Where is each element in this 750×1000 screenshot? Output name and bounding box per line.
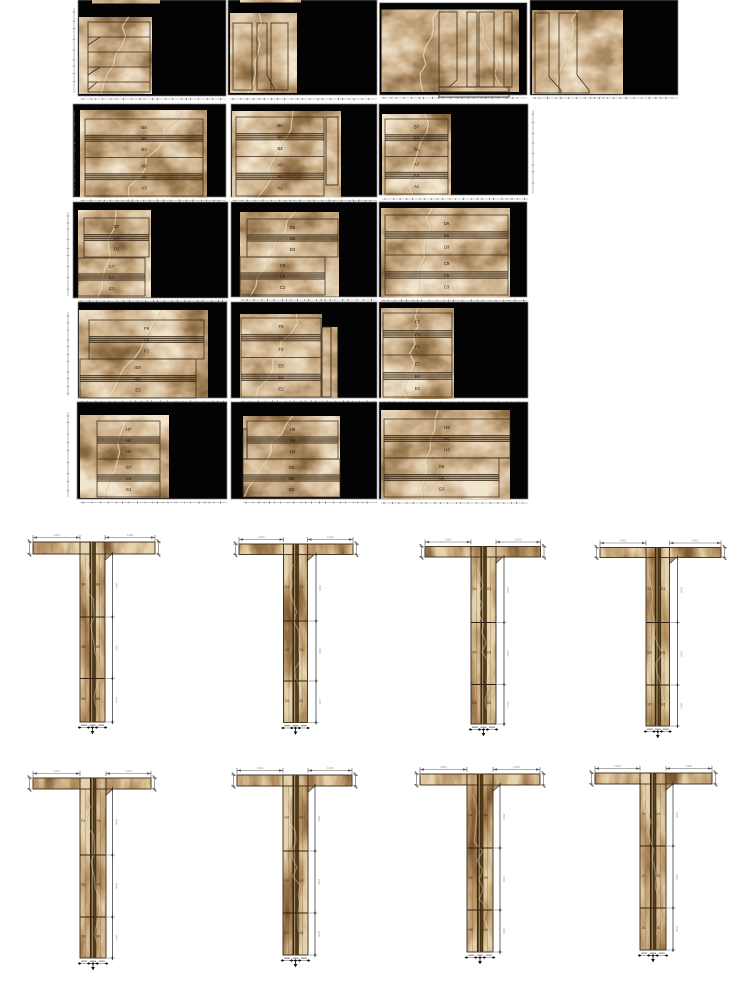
svg-text:A8: A8 — [141, 175, 147, 180]
svg-text:E6: E6 — [661, 703, 665, 707]
svg-text:F7: F7 — [415, 320, 421, 325]
svg-text:C2: C2 — [280, 285, 286, 290]
svg-text:1460: 1460 — [620, 539, 627, 543]
svg-text:1000: 1000 — [502, 928, 506, 935]
svg-text:H4: H4 — [469, 814, 473, 818]
svg-text:B8: B8 — [141, 125, 147, 130]
svg-text:A4: A4 — [414, 173, 420, 178]
svg-text:D4: D4 — [114, 235, 120, 240]
svg-text:F6: F6 — [97, 935, 101, 939]
svg-text:1460: 1460 — [258, 535, 265, 539]
svg-text:D6: D6 — [444, 233, 450, 238]
svg-text:J6: J6 — [657, 926, 661, 930]
svg-text:1500: 1500 — [115, 645, 119, 652]
svg-text:G3: G3 — [439, 487, 445, 492]
svg-text:A7: A7 — [414, 162, 420, 167]
svg-text:F6: F6 — [82, 935, 86, 939]
svg-text:A1: A1 — [414, 184, 420, 189]
svg-text:1460: 1460 — [127, 533, 134, 537]
svg-text:D6: D6 — [473, 701, 477, 705]
svg-text:D9: D9 — [444, 221, 450, 226]
svg-text:B7: B7 — [414, 125, 420, 130]
svg-text:J6: J6 — [642, 926, 646, 930]
svg-text:J4: J4 — [642, 812, 646, 816]
svg-text:H2: H2 — [290, 449, 296, 454]
svg-text:1000: 1000 — [318, 699, 322, 706]
svg-text:1460: 1460 — [686, 764, 693, 768]
svg-text:1460: 1460 — [445, 538, 452, 542]
svg-text:J4: J4 — [657, 812, 661, 816]
svg-text:B4: B4 — [414, 136, 420, 141]
svg-text:1500: 1500 — [115, 582, 119, 589]
svg-text:F8: F8 — [278, 324, 284, 329]
svg-text:1460: 1460 — [327, 766, 334, 770]
svg-text:B8: B8 — [277, 123, 283, 128]
svg-text:G4: G4 — [299, 816, 303, 820]
svg-text:E4: E4 — [648, 587, 652, 591]
svg-text:H3: H3 — [444, 448, 450, 453]
svg-text:1500: 1500 — [317, 815, 321, 822]
svg-text:F5: F5 — [278, 336, 284, 341]
svg-text:G8: G8 — [289, 465, 295, 470]
svg-text:E8: E8 — [278, 364, 284, 369]
svg-text:A8: A8 — [277, 163, 283, 168]
svg-text:H4: H4 — [484, 814, 488, 818]
svg-text:1500: 1500 — [502, 876, 506, 883]
svg-text:E1: E1 — [415, 386, 421, 391]
svg-text:J5: J5 — [642, 874, 646, 878]
svg-text:E5: E5 — [661, 651, 665, 655]
svg-text:B1: B1 — [414, 146, 420, 151]
svg-text:G6: G6 — [439, 475, 445, 480]
svg-text:B4: B4 — [96, 583, 100, 587]
svg-text:A9: A9 — [141, 163, 147, 168]
svg-text:H5: H5 — [484, 876, 488, 880]
svg-text:B6: B6 — [141, 136, 147, 141]
svg-text:E5: E5 — [648, 651, 652, 655]
svg-text:E2: E2 — [278, 387, 284, 392]
svg-text:1460: 1460 — [257, 766, 264, 770]
svg-text:E6: E6 — [648, 703, 652, 707]
svg-text:1000: 1000 — [115, 697, 119, 704]
svg-text:1500: 1500 — [502, 813, 506, 820]
svg-text:E7: E7 — [415, 362, 421, 367]
svg-text:D6: D6 — [487, 701, 491, 705]
svg-text:B6: B6 — [82, 697, 86, 701]
svg-text:B6: B6 — [96, 697, 100, 701]
svg-text:1460: 1460 — [692, 539, 699, 543]
svg-text:D4: D4 — [487, 587, 491, 591]
svg-text:H1: H1 — [126, 449, 132, 454]
svg-text:D2: D2 — [290, 247, 296, 252]
svg-text:1000: 1000 — [115, 934, 119, 941]
svg-text:C4: C4 — [299, 585, 303, 589]
svg-text:C7: C7 — [109, 264, 115, 269]
svg-text:D5: D5 — [473, 651, 477, 655]
svg-text:1500: 1500 — [318, 585, 322, 592]
svg-text:C5: C5 — [299, 648, 303, 652]
svg-text:G2: G2 — [289, 487, 295, 492]
svg-text:F4: F4 — [97, 819, 101, 823]
svg-text:F4: F4 — [82, 819, 86, 823]
svg-text:1500: 1500 — [317, 879, 321, 886]
svg-text:D8: D8 — [290, 225, 296, 230]
svg-text:B4: B4 — [82, 583, 86, 587]
svg-text:J5: J5 — [657, 874, 661, 878]
svg-text:C3: C3 — [444, 284, 450, 289]
svg-text:H9: H9 — [444, 425, 450, 430]
svg-text:H4: H4 — [126, 438, 132, 443]
svg-text:D7: D7 — [114, 224, 120, 229]
svg-text:H6: H6 — [469, 928, 473, 932]
svg-text:F1: F1 — [415, 344, 421, 349]
svg-text:E9: E9 — [135, 365, 141, 370]
svg-text:E6: E6 — [135, 376, 141, 381]
svg-text:D5: D5 — [487, 651, 491, 655]
svg-text:C6: C6 — [444, 273, 450, 278]
svg-text:G5: G5 — [289, 476, 295, 481]
svg-text:C1: C1 — [109, 286, 115, 291]
svg-text:B2: B2 — [277, 146, 283, 151]
svg-text:F2: F2 — [278, 347, 284, 352]
svg-text:1460: 1460 — [327, 535, 334, 539]
svg-text:1460: 1460 — [53, 769, 60, 773]
svg-text:E4: E4 — [661, 587, 665, 591]
svg-text:1500: 1500 — [675, 812, 679, 819]
svg-text:G5: G5 — [285, 879, 289, 883]
svg-text:A2: A2 — [277, 186, 283, 191]
svg-text:1500: 1500 — [115, 819, 119, 826]
svg-text:C5: C5 — [285, 648, 289, 652]
svg-text:F3: F3 — [144, 349, 150, 354]
svg-text:1500: 1500 — [675, 874, 679, 881]
svg-text:1460: 1460 — [440, 765, 447, 769]
svg-text:D1: D1 — [114, 247, 120, 252]
svg-text:G7: G7 — [126, 465, 132, 470]
svg-text:B5: B5 — [82, 645, 86, 649]
svg-text:F5: F5 — [97, 883, 101, 887]
svg-text:D3: D3 — [444, 244, 450, 249]
svg-text:1460: 1460 — [53, 533, 60, 537]
svg-text:C5: C5 — [280, 274, 286, 279]
svg-text:1460: 1460 — [515, 538, 522, 542]
svg-text:1000: 1000 — [317, 931, 321, 938]
svg-text:D4: D4 — [473, 587, 477, 591]
svg-text:1460: 1460 — [125, 769, 132, 773]
svg-text:1460: 1460 — [614, 764, 621, 768]
svg-text:F5: F5 — [82, 883, 86, 887]
svg-text:H6: H6 — [484, 928, 488, 932]
svg-text:F9: F9 — [144, 326, 150, 331]
svg-text:1000: 1000 — [675, 926, 679, 933]
svg-text:C6: C6 — [285, 699, 289, 703]
svg-text:C9: C9 — [444, 261, 450, 266]
svg-text:1500: 1500 — [318, 648, 322, 655]
svg-text:G6: G6 — [299, 931, 303, 935]
svg-text:H8: H8 — [290, 427, 296, 432]
svg-text:H5: H5 — [469, 876, 473, 880]
svg-text:F6: F6 — [144, 337, 150, 342]
svg-text:A5: A5 — [277, 174, 283, 179]
svg-text:G9: G9 — [439, 464, 445, 469]
svg-text:C4: C4 — [109, 275, 115, 280]
svg-text:E3: E3 — [135, 388, 141, 393]
svg-text:B6: B6 — [277, 135, 283, 140]
svg-text:H7: H7 — [126, 427, 132, 432]
svg-text:1000: 1000 — [680, 702, 684, 709]
svg-text:F4: F4 — [415, 332, 421, 337]
svg-text:G4: G4 — [126, 476, 132, 481]
svg-text:1500: 1500 — [506, 587, 510, 594]
svg-text:G6: G6 — [285, 931, 289, 935]
svg-text:1460: 1460 — [513, 765, 520, 769]
svg-text:C8: C8 — [280, 263, 286, 268]
svg-text:G1: G1 — [126, 487, 132, 492]
svg-text:1500: 1500 — [506, 650, 510, 657]
svg-text:E4: E4 — [415, 374, 421, 379]
svg-text:1500: 1500 — [680, 651, 684, 658]
svg-text:D5: D5 — [290, 236, 296, 241]
svg-text:1500: 1500 — [680, 587, 684, 594]
svg-text:1000: 1000 — [506, 701, 510, 708]
svg-text:H6: H6 — [444, 436, 450, 441]
svg-text:B5: B5 — [96, 645, 100, 649]
svg-text:G5: G5 — [299, 879, 303, 883]
svg-text:1500: 1500 — [115, 883, 119, 890]
svg-text:C6: C6 — [299, 699, 303, 703]
svg-text:E5: E5 — [278, 375, 284, 380]
svg-text:G4: G4 — [285, 816, 289, 820]
svg-text:B3: B3 — [141, 147, 147, 152]
svg-text:H5: H5 — [290, 438, 296, 443]
svg-text:C4: C4 — [285, 585, 289, 589]
svg-text:A3: A3 — [141, 186, 147, 191]
